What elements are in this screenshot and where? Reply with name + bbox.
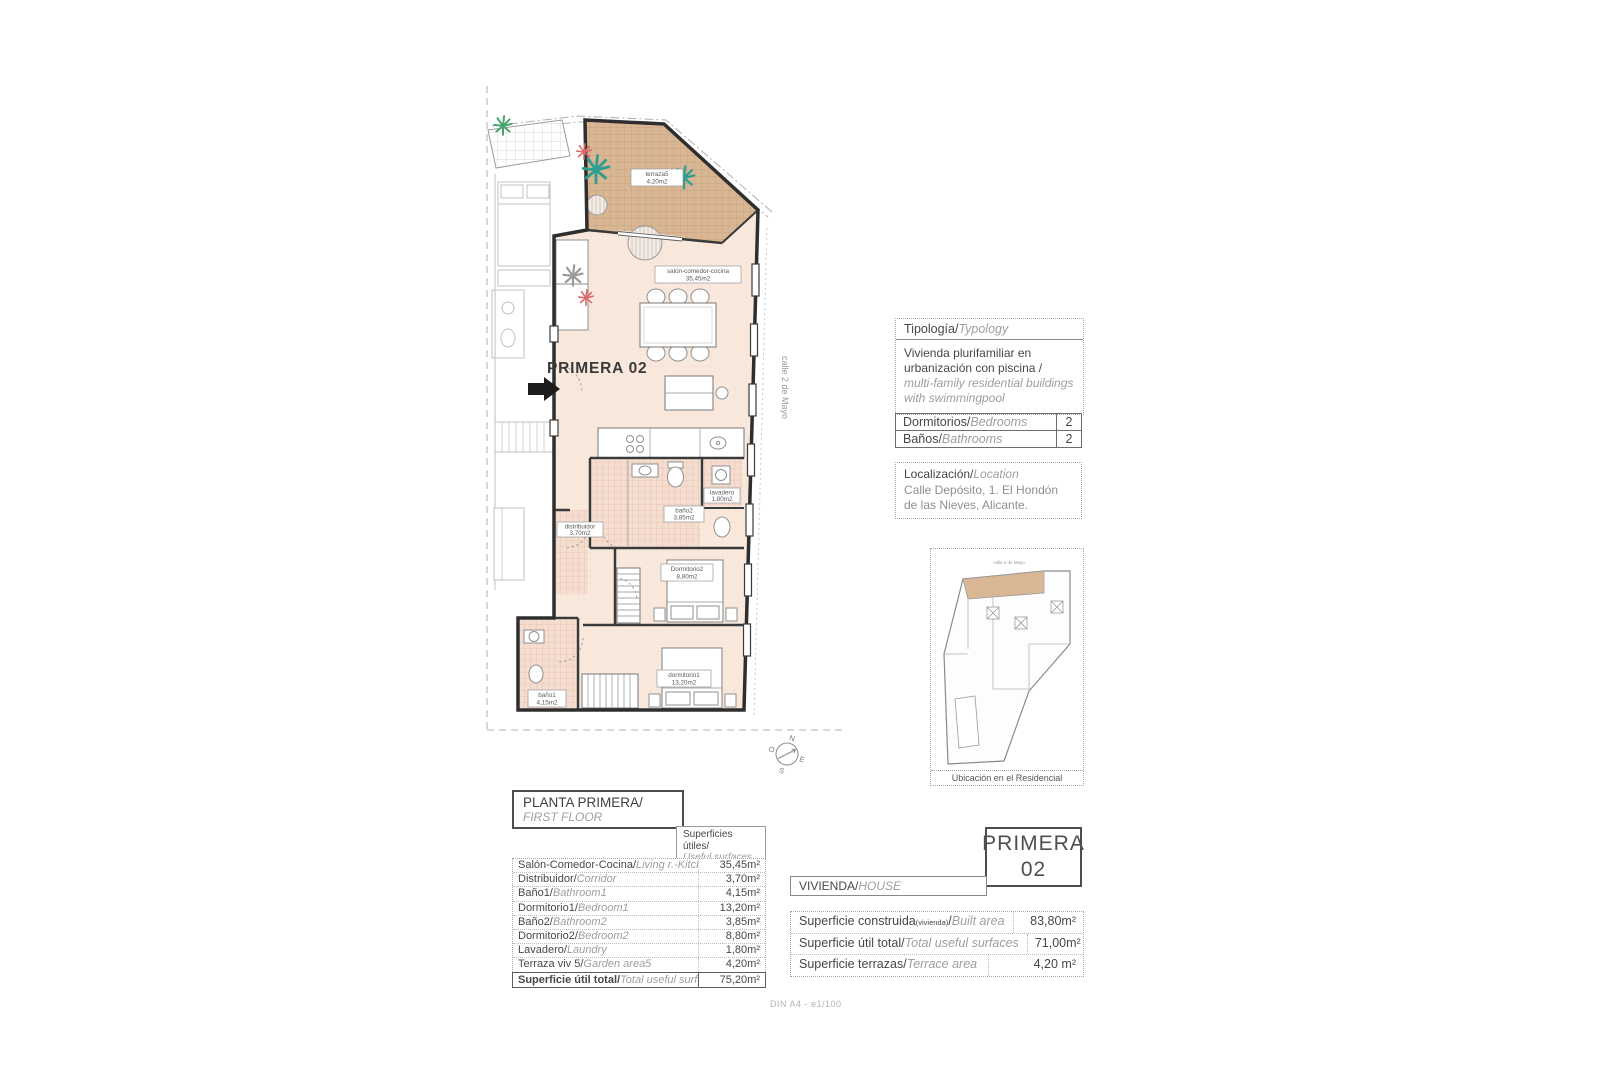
- table-row: Distribuidor/Corridor3,70m²: [513, 873, 765, 887]
- label-bano2: baño2 3,85m2: [664, 506, 704, 522]
- bathrooms-label-en: Bathrooms: [942, 432, 1002, 446]
- table-row: Lavadero/Laundry1,80m²: [513, 944, 765, 958]
- street-label: calle 2 de Mayo: [780, 356, 790, 419]
- label-dormitorio2: Dormitorio2 8,80m2: [661, 564, 713, 581]
- typology-header-es: Tipología/: [904, 322, 958, 336]
- floor-title-en: FIRST FLOOR: [523, 810, 673, 824]
- svg-text:baño1: baño1: [538, 692, 556, 699]
- vivienda-box: VIVIENDA/HOUSE: [790, 876, 987, 896]
- svg-text:8,80m2: 8,80m2: [676, 574, 698, 581]
- table-row: Dormitorio2/Bedroom28,80m²: [513, 930, 765, 944]
- rooms-count-table: Dormitorios/Bedrooms 2 Baños/Bathrooms 2: [895, 413, 1082, 448]
- label-distribuidor: distribuidor 3,70m2: [557, 522, 603, 537]
- useful-surfaces-es: Superficies útiles/: [683, 829, 732, 852]
- table-row: Superficie útil total/Total useful surfa…: [791, 934, 1083, 956]
- siteplan-caption: Ubicación en el Residencial: [931, 770, 1083, 785]
- location-header-es: Localización/: [904, 467, 973, 481]
- label-lavadero: lavadero 1,80m2: [704, 488, 740, 503]
- svg-text:Dormitorio2: Dormitorio2: [671, 566, 704, 573]
- bathrooms-count: 2: [1056, 431, 1081, 447]
- table-row: Superficie construida(vivienda)/Built ar…: [791, 912, 1083, 934]
- svg-text:3,85m2: 3,85m2: [673, 515, 695, 522]
- typology-header-en: Typology: [958, 322, 1008, 336]
- bedrooms-count: 2: [1056, 414, 1081, 430]
- typology-text-en: multi-family residential buildings with …: [904, 376, 1073, 405]
- bedrooms-label-es: Dormitorios/: [903, 415, 970, 429]
- plan-sheet: terraza5 4,20m2 salón-comedor-cocina 35,…: [0, 0, 1620, 1080]
- typology-box: Tipología/Typology Vivienda plurifamilia…: [895, 318, 1084, 415]
- vivienda-label-en: HOUSE: [858, 879, 901, 893]
- total-row: Superficie útil total/Total useful surfa…: [512, 972, 766, 988]
- unit-callout-label: PRIMERA 02: [547, 360, 647, 377]
- unit-number-box: PRIMERA 02: [985, 827, 1082, 887]
- site-plan-box: calle 2 de Mayo Ubicación en el Residenc…: [930, 548, 1084, 786]
- location-address: Calle Depósito, 1. El Hondón de las Niev…: [904, 483, 1058, 513]
- svg-text:terraza5: terraza5: [645, 171, 669, 178]
- table-row: Salón-Comedor-Cocina/Living r.-Kitchen35…: [513, 859, 765, 873]
- siteplan-street-label: calle 2 de Mayo: [993, 560, 1025, 565]
- table-row: Baño1/Bathroom14,15m²: [513, 887, 765, 901]
- label-dormitorio1: dormitorio1 13,20m2: [657, 670, 711, 687]
- vivienda-label-es: VIVIENDA/: [799, 879, 858, 893]
- typology-body: Vivienda plurifamiliar en urbanización c…: [896, 340, 1083, 414]
- location-box: Localización/Location Calle Depósito, 1.…: [895, 462, 1082, 519]
- location-header-en: Location: [973, 467, 1018, 481]
- svg-text:salón-comedor-cocina: salón-comedor-cocina: [667, 268, 729, 275]
- floor-plan-drawing: terraza5 4,20m2 salón-comedor-cocina 35,…: [470, 78, 870, 798]
- label-terraza: terraza5 4,20m2: [631, 169, 683, 186]
- svg-text:1,80m2: 1,80m2: [711, 496, 733, 503]
- typology-header: Tipología/Typology: [896, 319, 1083, 340]
- table-row: Baño2/Bathroom23,85m²: [513, 916, 765, 930]
- label-bano1: baño1 4,15m2: [528, 690, 566, 707]
- bedrooms-label-en: Bedrooms: [970, 415, 1027, 429]
- table-row: Dormitorio1/Bedroom113,20m²: [513, 902, 765, 916]
- floor-title-es: PLANTA PRIMERA/: [523, 795, 673, 810]
- unit-number-line1: PRIMERA: [982, 831, 1085, 857]
- table-row: Superficie terrazas/Terrace area 4,20 m²: [791, 955, 1083, 976]
- svg-text:baño2: baño2: [675, 508, 693, 515]
- svg-text:N: N: [788, 733, 796, 743]
- site-plan-drawing: calle 2 de Mayo: [931, 549, 1081, 765]
- svg-text:13,20m2: 13,20m2: [672, 680, 697, 687]
- svg-text:35,45m2: 35,45m2: [686, 276, 711, 283]
- summary-table: Superficie construida(vivienda)/Built ar…: [790, 911, 1084, 977]
- scale-note: DIN A4 - e1/100: [770, 999, 842, 1009]
- svg-text:O: O: [767, 744, 775, 754]
- table-row: Dormitorios/Bedrooms 2: [896, 414, 1081, 430]
- svg-text:4,15m2: 4,15m2: [536, 700, 558, 707]
- useful-surfaces-table: Salón-Comedor-Cocina/Living r.-Kitchen35…: [512, 858, 766, 988]
- table-row: Terraza viv 5/Garden area54,20m²: [513, 958, 765, 972]
- svg-text:S: S: [778, 766, 786, 776]
- bathrooms-label-es: Baños/: [903, 432, 942, 446]
- floor-title-box: PLANTA PRIMERA/ FIRST FLOOR: [512, 790, 684, 829]
- typology-text-es: Vivienda plurifamiliar en urbanización c…: [904, 346, 1042, 375]
- label-salon: salón-comedor-cocina 35,45m2: [655, 266, 741, 283]
- svg-text:E: E: [798, 754, 806, 764]
- neighbour-unit: [492, 174, 553, 590]
- svg-text:dormitorio1: dormitorio1: [668, 672, 700, 679]
- svg-text:3,70m2: 3,70m2: [569, 530, 591, 537]
- pool-shape: [955, 696, 979, 748]
- unit-number-line2: 02: [1021, 857, 1046, 883]
- compass-icon: N E S O: [762, 728, 811, 780]
- svg-text:4,20m2: 4,20m2: [646, 179, 668, 186]
- table-row: Baños/Bathrooms 2: [896, 430, 1081, 447]
